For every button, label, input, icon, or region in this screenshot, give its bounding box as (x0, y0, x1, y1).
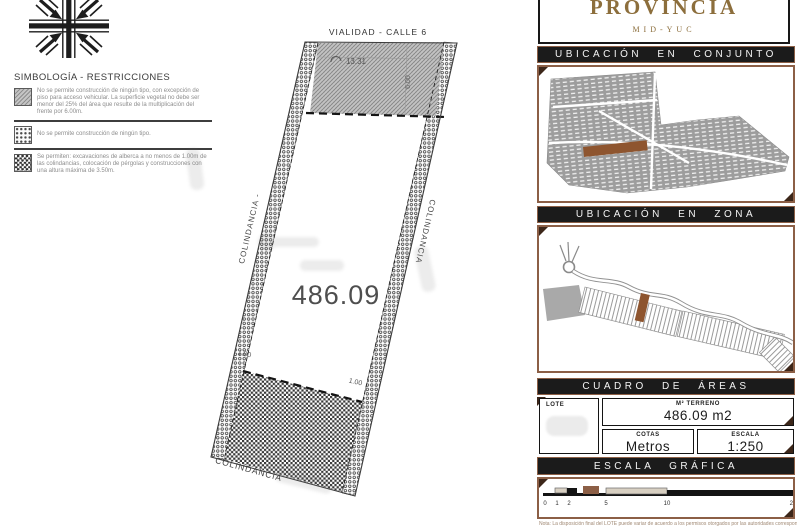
corner-ornament (784, 416, 793, 425)
scale-tick: 10 (664, 501, 671, 507)
scale-segment (567, 488, 577, 493)
scale-segment (667, 490, 793, 496)
corner-ornament (784, 192, 793, 201)
scale-bar (539, 481, 793, 501)
setback-dimension-label: 6.00 (405, 75, 412, 89)
brand-name: PROVINCIA (540, 0, 788, 20)
scale-tick: 0 (543, 501, 546, 507)
lote-header: LOTE (546, 402, 598, 408)
scale-segment (606, 488, 667, 494)
zona-map-panel (537, 225, 795, 373)
vialidad-setback-strip (310, 42, 444, 116)
brand-subname: MID-YUC (540, 25, 788, 34)
cotas-cell: COTAS Metros (602, 429, 694, 454)
section-bar-zona: UBICACIÓN EN ZONA (537, 206, 795, 223)
scale-segment (555, 488, 567, 493)
blur-redaction (300, 260, 344, 271)
zona-map (539, 227, 793, 371)
blur-redaction (185, 147, 205, 191)
lote-value-redacted (546, 416, 588, 436)
plan-sheet: SIMBOLOGÍA - RESTRICCIONES No se permite… (0, 0, 537, 527)
street-label: VIALIDAD - CALLE 6 (329, 27, 427, 37)
scale-tick: 20 (790, 501, 795, 507)
corner-ornament (784, 362, 793, 371)
scale-segment (583, 486, 599, 494)
corner-ornament (784, 508, 793, 517)
corner-ornament (539, 227, 548, 236)
roundabout (560, 242, 579, 273)
escala-header: ESCALA (698, 432, 793, 438)
section-bar-areas: CUADRO DE ÁREAS (537, 378, 795, 395)
lot-drawing: 13.31 6.00 VIALIDAD - CALLE 6 486.09 COL… (0, 0, 537, 527)
corner-ornament (539, 67, 548, 76)
scale-tick: 1 (555, 501, 558, 507)
escala-value: 1:250 (698, 439, 793, 454)
escala-cell: ESCALA 1:250 (697, 429, 794, 454)
section-bar-escala-grafica: ESCALA GRÁFICA (537, 457, 795, 475)
lote-cell: LOTE (539, 398, 599, 454)
zona-gray-block (543, 285, 585, 321)
offset-right-label: 1.00 (348, 378, 363, 388)
terreno-cell: M² TERRENO 486.09 m2 (602, 398, 794, 426)
scale-tick: 2 (567, 501, 570, 507)
areas-table: LOTE M² TERRENO 486.09 m2 COTAS Metros E… (537, 397, 795, 457)
front-dimension-label: 13.31 (346, 57, 367, 66)
blur-redaction (267, 237, 319, 247)
masterplan-shape (547, 72, 789, 193)
terreno-header: M² TERRENO (603, 401, 793, 407)
graphic-scale-panel: 0 1 2 5 10 20 (537, 477, 795, 519)
cotas-header: COTAS (603, 432, 693, 438)
conjunto-map (539, 67, 793, 201)
section-bar-conjunto: UBICACIÓN EN CONJUNTO (537, 46, 795, 63)
title-block-panel: PROVINCIA MID-YUC UBICACIÓN EN CONJUNTO … (537, 0, 800, 527)
cotas-value: Metros (603, 439, 693, 454)
brand-logo-box: PROVINCIA MID-YUC (538, 0, 790, 44)
terreno-value: 486.09 m2 (603, 408, 793, 423)
area-label: 486.09 (292, 280, 381, 310)
corner-ornament (784, 444, 793, 453)
note-text: Nota: La disposición final del LOTE pued… (539, 521, 797, 527)
zona-lot-row (579, 287, 682, 336)
conjunto-map-panel (537, 65, 795, 203)
scale-tick: 5 (604, 501, 607, 507)
